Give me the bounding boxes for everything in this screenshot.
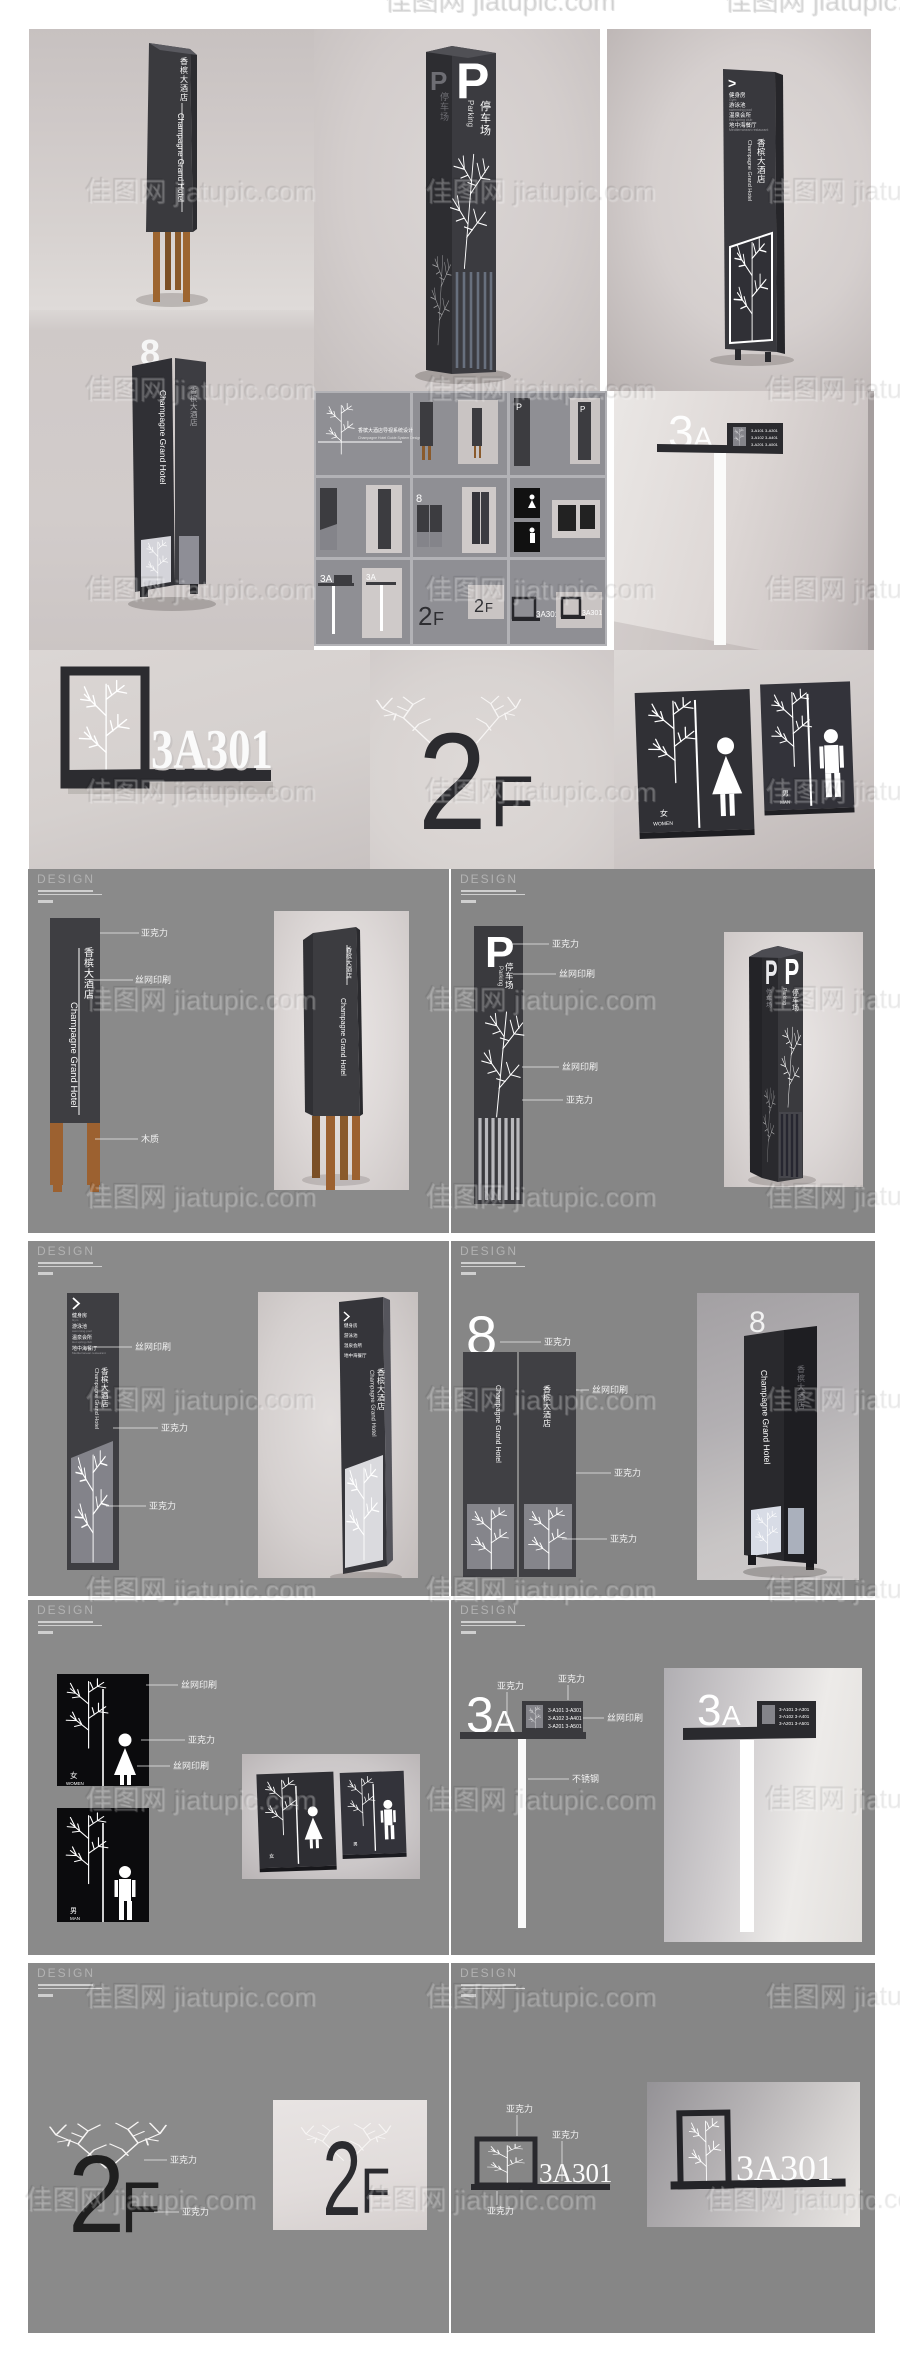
svg-text:Parking: Parking: [466, 100, 475, 127]
svg-text:丝网印刷: 丝网印刷: [135, 1341, 171, 1352]
svg-text:丝网印刷: 丝网印刷: [607, 1712, 643, 1723]
svg-text:>: >: [728, 75, 736, 91]
svg-text:亚克力: 亚克力: [141, 927, 168, 938]
svg-text:Gym: Gym: [72, 1318, 79, 1322]
svg-text:Champagne Grand Hotel: Champagne Grand Hotel: [68, 1002, 79, 1108]
svg-text:丝网印刷: 丝网印刷: [562, 1061, 598, 1072]
svg-text:亚克力: 亚克力: [170, 2154, 197, 2165]
svg-text:健身房: 健身房: [344, 1322, 358, 1329]
svg-text:Mediterranean restaurant: Mediterranean restaurant: [72, 1351, 106, 1355]
svg-text:亚克力: 亚克力: [544, 1336, 571, 1347]
svg-text:3-A102 3-A401: 3-A102 3-A401: [751, 435, 779, 440]
svg-text:木质: 木质: [141, 1133, 159, 1144]
svg-text:3A301: 3A301: [582, 610, 602, 617]
svg-text:亚克力: 亚克力: [506, 2103, 533, 2114]
svg-text:3-A101 3-A301: 3-A101 3-A301: [548, 1708, 582, 1714]
svg-text:3-A101 3-A301: 3-A101 3-A301: [779, 1707, 810, 1712]
svg-text:Champagne Grand Hotel: Champagne Grand Hotel: [746, 140, 752, 201]
svg-text:3-A101 3-A301: 3-A101 3-A301: [751, 428, 779, 433]
svg-text:3-A102 3-A401: 3-A102 3-A401: [779, 1714, 810, 1719]
svg-text:Hot spring club: Hot spring club: [729, 118, 752, 122]
svg-text:3A: 3A: [366, 573, 376, 582]
svg-text:亚克力: 亚克力: [558, 1673, 585, 1684]
svg-text:亚克力: 亚克力: [161, 1422, 188, 1433]
svg-text:亚克力: 亚克力: [188, 1734, 215, 1745]
svg-text:swimming pool: swimming pool: [72, 1329, 92, 1333]
svg-text:3-A102 3-A401: 3-A102 3-A401: [548, 1716, 582, 1722]
svg-text:Hot spring club: Hot spring club: [72, 1340, 92, 1344]
svg-text:香槟大酒店: 香槟大酒店: [180, 56, 188, 102]
svg-text:停车场: 停车场: [480, 99, 491, 137]
svg-text:Mediterranean restaurant: Mediterranean restaurant: [729, 128, 768, 132]
svg-text:地中海餐厅: 地中海餐厅: [344, 1352, 367, 1359]
svg-text:Gym: Gym: [729, 98, 736, 102]
svg-text:F: F: [433, 609, 444, 629]
svg-text:Champagne Hotel Guide System D: Champagne Hotel Guide System Design: [358, 436, 421, 440]
svg-text:swimming pool: swimming pool: [729, 108, 752, 112]
svg-text:丝网印刷: 丝网印刷: [181, 1679, 217, 1690]
svg-text:香槟大酒店: 香槟大酒店: [377, 1367, 385, 1411]
svg-text:温泉会所: 温泉会所: [344, 1342, 362, 1349]
svg-text:WOMEN: WOMEN: [653, 821, 673, 828]
svg-text:游泳池: 游泳池: [344, 1332, 358, 1339]
svg-text:Champagne Grand Hotel: Champagne Grand Hotel: [339, 998, 346, 1076]
svg-text:停车场: 停车场: [440, 91, 449, 122]
svg-text:亚克力: 亚克力: [566, 1094, 593, 1105]
svg-text:3-A201 3-A501: 3-A201 3-A501: [779, 1721, 810, 1726]
svg-text:8: 8: [416, 493, 422, 505]
svg-text:亚克力: 亚克力: [497, 1680, 524, 1691]
svg-text:男: 男: [70, 1907, 77, 1915]
svg-text:A: A: [722, 1700, 741, 1731]
svg-text:香槟大酒店: 香槟大酒店: [346, 946, 352, 980]
svg-text:WOMEN: WOMEN: [66, 1781, 84, 1786]
svg-text:女: 女: [70, 1770, 78, 1780]
svg-text:3-A201 3-A501: 3-A201 3-A501: [751, 442, 779, 447]
svg-text:丝网印刷: 丝网印刷: [173, 1760, 209, 1771]
svg-text:MAN: MAN: [70, 1916, 80, 1921]
svg-text:亚克力: 亚克力: [552, 2129, 579, 2140]
svg-text:亚克力: 亚克力: [552, 938, 579, 949]
svg-text:女: 女: [660, 808, 668, 818]
svg-text:亚克力: 亚克力: [610, 1533, 637, 1544]
svg-text:亚克力: 亚克力: [614, 1467, 641, 1478]
svg-text:女: 女: [269, 1853, 274, 1860]
svg-text:亚克力: 亚克力: [149, 1500, 176, 1511]
svg-text:3-A201 3-A501: 3-A201 3-A501: [548, 1724, 582, 1730]
svg-text:2: 2: [322, 2121, 361, 2230]
svg-text:香槟大酒店导视系统设计: 香槟大酒店导视系统设计: [358, 427, 413, 434]
